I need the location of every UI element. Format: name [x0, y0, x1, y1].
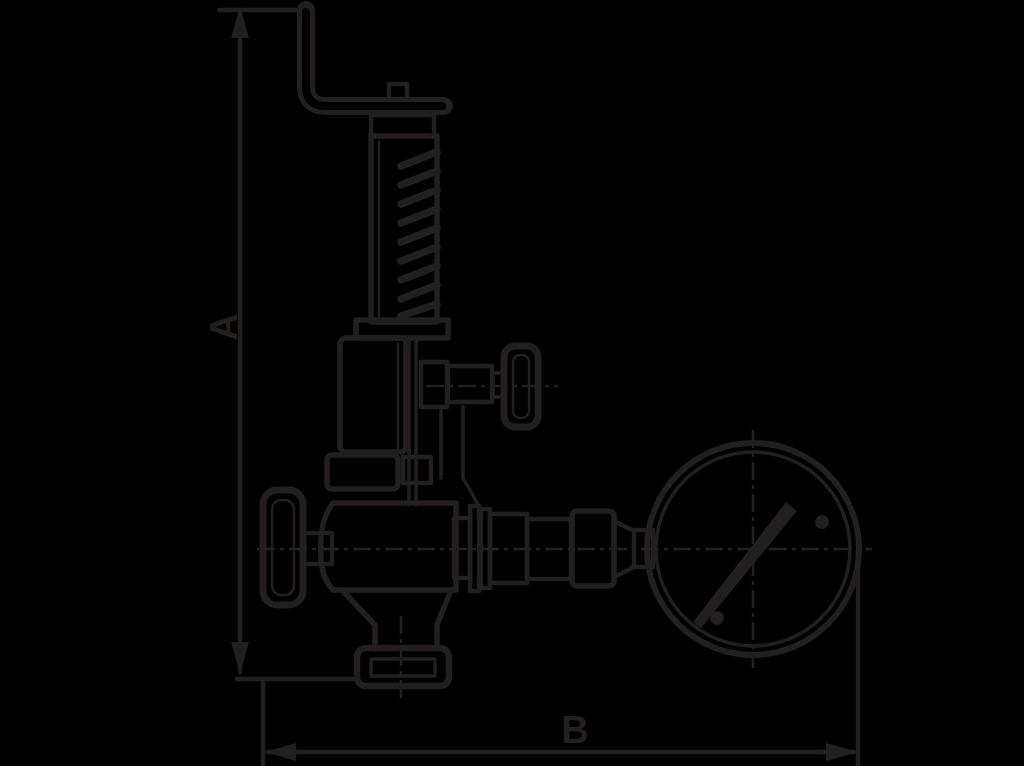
arrowhead-down-icon [231, 642, 249, 674]
gauge-needle-icon [693, 502, 797, 628]
hand-wheel-icon [263, 490, 303, 605]
dimension-b-label: B [561, 709, 588, 751]
arrowhead-right-icon [826, 743, 858, 761]
dimension-a-label: A [203, 313, 245, 340]
gauge-screw-dot [710, 611, 724, 625]
gauge-screw-dot [815, 515, 829, 529]
valve-assembly [257, 10, 872, 700]
spring-column-icon [356, 136, 448, 338]
drawing-canvas: A B [0, 0, 1024, 766]
technical-drawing-svg: A B [0, 0, 1024, 766]
valve-body [303, 503, 470, 649]
inlet-flange [357, 648, 449, 686]
arrowhead-left-icon [264, 743, 296, 761]
side-port-knob-icon [421, 346, 538, 508]
dimension-b: B [263, 549, 858, 766]
lever-bracket-icon [306, 10, 444, 106]
